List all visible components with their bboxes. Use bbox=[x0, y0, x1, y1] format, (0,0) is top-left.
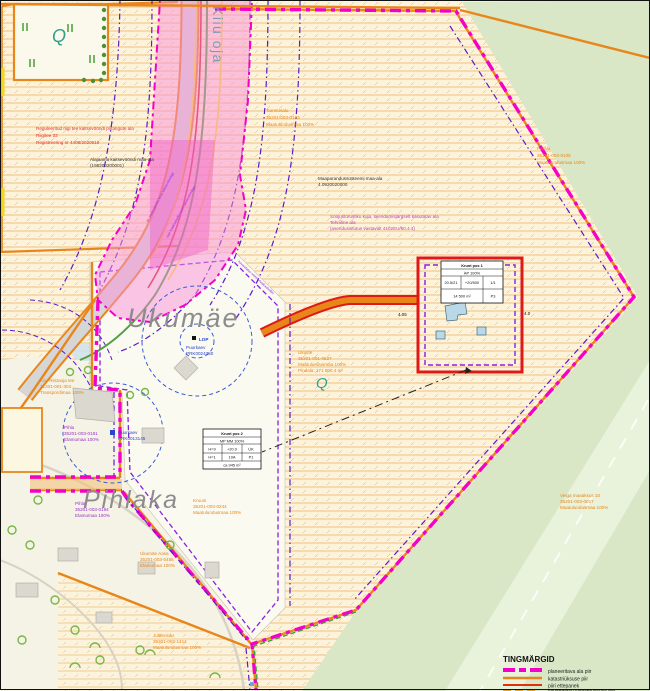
parcel-line: Maatulundusmaa 100% bbox=[560, 505, 608, 510]
well-line: PRK0024350 bbox=[186, 351, 214, 356]
spring-symbol: Q bbox=[316, 375, 328, 392]
table-cell: +20.0 bbox=[227, 447, 238, 452]
parcel-line: 35201-003-0244 bbox=[193, 504, 227, 509]
parcel-line: Parala bbox=[537, 146, 551, 151]
parcel-line: Pihla bbox=[64, 425, 75, 430]
dimension-label: 4.05 bbox=[398, 312, 407, 317]
note-line: Soojustorustiku kuja, laiendamisjärgselt… bbox=[330, 214, 439, 219]
parcel-line: 35201-003-0105 bbox=[537, 153, 571, 158]
table-cell: +20/500 bbox=[465, 280, 480, 285]
parcel-line: Tammetalu bbox=[266, 108, 289, 113]
note-line: Maaparandussüsteemi maa-ala bbox=[318, 176, 383, 181]
plan-map-canvas: Q bbox=[0, 0, 650, 691]
well2-marker bbox=[110, 430, 115, 435]
table-cell: 1/1 bbox=[490, 280, 495, 285]
table-cell: H=9 bbox=[208, 447, 215, 452]
well-line: Puurkaev bbox=[118, 430, 138, 435]
table-title: Krunt pos 1 bbox=[461, 263, 483, 268]
parcel-line: 35201-003-0017 bbox=[560, 499, 594, 504]
table-use: MP MM 100% bbox=[220, 439, 245, 444]
table-cell: 10A bbox=[229, 455, 236, 460]
magenta-dashed-swatch bbox=[503, 668, 542, 672]
well-line: PRK0013145 bbox=[118, 436, 146, 441]
place-label-ukumae: Ukumäe bbox=[127, 303, 240, 333]
well1-marker bbox=[192, 336, 196, 340]
note-line: Registreering nr 4408/2020618 bbox=[36, 140, 100, 145]
parcel-line: Pindala: 171 800.4 m² bbox=[298, 368, 343, 373]
pos2-data-table: Krunt pos 2 MP MM 100% H=9 +20.0 ÜK H=1 … bbox=[203, 429, 261, 469]
pos1-data-table: Krunt pos 1 ÄP 100% 20.5/21 +20/500 1/1 … bbox=[441, 261, 503, 303]
note-line: (198200200001) bbox=[90, 163, 124, 168]
table-cell: 20.5/21 bbox=[445, 280, 458, 285]
legend-label: planeeritava ala piir bbox=[548, 669, 592, 675]
parcel-line: Maatulundusmaa 100% bbox=[298, 362, 346, 367]
parcel-line: 35201-003-1414 bbox=[153, 639, 187, 644]
note-line: Tehniline ala bbox=[330, 220, 356, 225]
note-line: Reguleeritud riigi tee kaitsevööndi piir… bbox=[36, 126, 134, 131]
table-cell: P1 bbox=[249, 455, 254, 460]
parcel-line: Maatulundusmaa 100% bbox=[153, 645, 201, 650]
legend-title: TINGMÄRGID bbox=[503, 655, 555, 664]
table-code: P3 bbox=[491, 294, 496, 299]
parcel-line: 35201-003-0123 bbox=[266, 115, 300, 120]
parcel-line: Elamumaa 100% bbox=[140, 563, 175, 568]
table-cell: ÜK bbox=[248, 447, 254, 452]
well-line: Puurkaev bbox=[186, 345, 206, 350]
parcel-line: 31201-001-304 bbox=[40, 384, 72, 389]
parcel-line: Elamumaa 100% bbox=[64, 437, 99, 442]
note-line: Alajaama kaitsevööndi maa-ala bbox=[90, 157, 154, 162]
parcel-line: Transpordimaa 100% bbox=[40, 390, 84, 395]
stream-label: Kiiu oja bbox=[210, 6, 226, 64]
well-line: LOP bbox=[199, 337, 208, 342]
table-area: 14 500 m² bbox=[453, 294, 471, 299]
parcel-line: Veiga maaüksus 10 bbox=[560, 493, 601, 498]
note-line: Riigitee 33 bbox=[36, 133, 58, 138]
parcel-line: Kruusi bbox=[193, 498, 206, 503]
dimension-label: 4.0 bbox=[524, 311, 531, 316]
parcel-line: Juttleniidu bbox=[153, 633, 174, 638]
parcel-line: 35201-003-0181 bbox=[64, 431, 98, 436]
parcel-line: Maatulundusmaa 100% bbox=[266, 122, 314, 127]
spring-symbol: Q bbox=[52, 26, 66, 46]
parcel-line: Kiiu-Riistaoja tee bbox=[40, 378, 75, 383]
detail-plan-map: Q bbox=[0, 0, 650, 691]
parcel-line: Pihla bbox=[75, 501, 86, 506]
parcel-line: Ukumäe Aasa bbox=[140, 551, 169, 556]
table-title: Krunt pos 2 bbox=[221, 431, 243, 436]
legend-label: katastriüksuse piir bbox=[548, 677, 588, 683]
table-cell: H=1 bbox=[208, 455, 215, 460]
note-line: 4.0920020000 bbox=[318, 182, 348, 187]
table-area: ca 945 m² bbox=[223, 463, 241, 468]
parcel-line: Maatulundusmaa 100% bbox=[537, 160, 585, 165]
table-use: ÄP 100% bbox=[464, 271, 481, 276]
parcel-line: Maatulundusmaa 100% bbox=[193, 510, 241, 515]
parcel-line: 35201-001-0527 bbox=[298, 356, 332, 361]
parcel-line: Elamumaa 100% bbox=[75, 513, 110, 518]
parcel-line: 35201-003-0456 bbox=[140, 557, 174, 562]
note-line: (asendusistutus vastavalt 4102EU/50.4.1) bbox=[330, 226, 416, 231]
culvert-marker bbox=[250, 682, 254, 686]
parcel-line: 35201-003-0194 bbox=[75, 507, 109, 512]
parcel-line: Ukuste bbox=[298, 350, 313, 355]
